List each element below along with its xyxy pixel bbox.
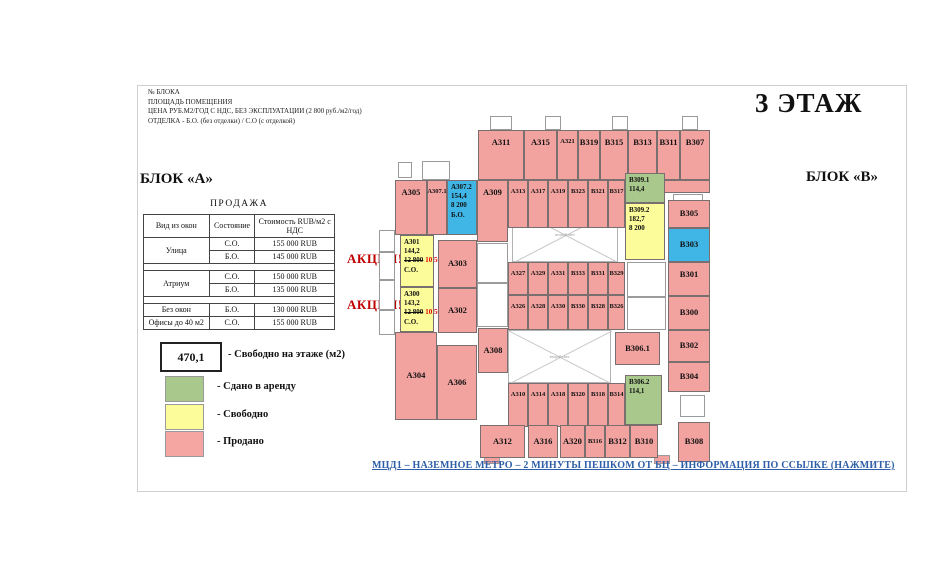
room-В301: В301 bbox=[668, 262, 710, 296]
table-cell: С.О. bbox=[209, 271, 255, 284]
room-id-label: А329 bbox=[531, 270, 545, 277]
room-id-label: А303 bbox=[448, 259, 467, 268]
view-cell: Атриум bbox=[144, 271, 210, 297]
table-spacer-row bbox=[144, 297, 335, 304]
room-А329: А329 bbox=[528, 262, 548, 295]
room-В307: В307 bbox=[680, 130, 710, 180]
room-В331: В331 bbox=[588, 262, 608, 295]
room-А311: А311 bbox=[478, 130, 524, 180]
room-В302: В302 bbox=[668, 330, 710, 362]
room-id-label: В329 bbox=[609, 270, 623, 277]
room-id-label: В315 bbox=[605, 138, 623, 147]
room-id-label: А304 bbox=[407, 371, 426, 380]
room-text-line: С.О. bbox=[404, 318, 418, 327]
room-А307.1: А307.1 bbox=[427, 180, 447, 235]
room-А310: А310 bbox=[508, 383, 528, 427]
legend-item-label: - Свободно bbox=[217, 409, 268, 420]
room-text-line: А307.2 bbox=[451, 183, 472, 192]
room-id-label: В306.1 bbox=[625, 344, 650, 353]
room-id-label: А317 bbox=[531, 188, 545, 195]
room-В323: В323 bbox=[568, 180, 588, 228]
header-line: ПЛОЩАДЬ ПОМЕЩЕНИЯ bbox=[148, 98, 362, 108]
col-header-price: Стоимость RUB/м2 с НДС bbox=[255, 215, 335, 238]
room-id-label: В303 bbox=[680, 240, 698, 249]
room-id-label: В314 bbox=[609, 391, 623, 398]
room-id-label: В308 bbox=[685, 437, 703, 446]
floor-plan: второй свет второй светА311А315А321В319В… bbox=[388, 125, 733, 470]
room-А301: А301144,212 80010 500С.О. bbox=[400, 235, 434, 287]
room-В310: В310 bbox=[630, 425, 658, 458]
view-cell: Офисы до 40 м2 bbox=[144, 317, 210, 330]
room-А316: А316 bbox=[528, 425, 558, 458]
room-id-label: В320 bbox=[571, 391, 585, 398]
room-В321: В321 bbox=[588, 180, 608, 228]
sales-table-title: ПРОДАЖА bbox=[143, 199, 335, 209]
utility-cell bbox=[680, 395, 705, 417]
utility-cell bbox=[545, 116, 561, 130]
room-text-line: 144,2 bbox=[404, 247, 420, 256]
room-В309.2: В309.2182,78 200 bbox=[625, 203, 665, 260]
room-В304: В304 bbox=[668, 362, 710, 392]
room-А319: А319 bbox=[548, 180, 568, 228]
room-В328: В328 bbox=[588, 295, 608, 330]
legend-free-area-label: - Свободно на этаже (м2) bbox=[228, 349, 345, 360]
room-id-label: В333 bbox=[571, 270, 585, 277]
table-row: АтриумС.О.150 000 RUB bbox=[144, 271, 335, 284]
room-А331: А331 bbox=[548, 262, 568, 295]
room-В318: В318 bbox=[588, 383, 608, 427]
room-id-label: А313 bbox=[511, 188, 525, 195]
room-id-label: В319 bbox=[580, 138, 598, 147]
utility-cell bbox=[627, 262, 666, 297]
room-id-label: А311 bbox=[492, 138, 510, 147]
room-В300: В300 bbox=[668, 296, 710, 330]
room-id-label: В328 bbox=[591, 303, 605, 310]
room-id-label: В305 bbox=[680, 209, 698, 218]
view-cell: Улица bbox=[144, 238, 210, 264]
room-id-label: А306 bbox=[448, 378, 467, 387]
room-text-line: В309.1 bbox=[629, 176, 649, 185]
room-text-line: 114,1 bbox=[629, 387, 644, 396]
col-header-state: Состояние bbox=[209, 215, 255, 238]
room-id-label: А321 bbox=[560, 138, 574, 145]
room-text-line: С.О. bbox=[404, 266, 418, 275]
table-row: УлицаС.О.155 000 RUB bbox=[144, 238, 335, 251]
room-id-label: В313 bbox=[633, 138, 651, 147]
room-text-line: В309.2 bbox=[629, 206, 649, 215]
room-А307.2: А307.2154,48 200Б.О. bbox=[447, 180, 477, 235]
room-В326: В326 bbox=[608, 295, 625, 330]
legend-swatch bbox=[165, 376, 204, 402]
header-info: № БЛОКА ПЛОЩАДЬ ПОМЕЩЕНИЯ ЦЕНА РУБ.М2/ГО… bbox=[148, 88, 362, 126]
room-id-label: А328 bbox=[531, 303, 545, 310]
room-А315: А315 bbox=[524, 130, 557, 180]
room-id-label: В307 bbox=[686, 138, 704, 147]
room-id-label: А330 bbox=[551, 303, 565, 310]
room-id-label: А327 bbox=[511, 270, 525, 277]
room-text-line: А301 bbox=[404, 238, 420, 247]
room-id-label: А318 bbox=[551, 391, 565, 398]
room-В333: В333 bbox=[568, 262, 588, 295]
atrium-void: второй свет bbox=[508, 330, 611, 383]
room-А308: А308 bbox=[478, 328, 508, 373]
room-id-label: В301 bbox=[680, 270, 698, 279]
header-line: ЦЕНА РУБ.М2/ГОД С НДС, БЕЗ ЭКСПЛУАТАЦИИ … bbox=[148, 107, 362, 117]
room-id-label: В330 bbox=[571, 303, 585, 310]
block-a-label: БЛОК «А» bbox=[140, 171, 213, 188]
table-cell: 155 000 RUB bbox=[255, 238, 335, 251]
table-cell: Б.О. bbox=[209, 304, 255, 317]
room-А321: А321 bbox=[557, 130, 578, 180]
room-id-label: В310 bbox=[635, 437, 653, 446]
room-А320: А320 bbox=[560, 425, 585, 458]
room-В309.1: В309.1114,4 bbox=[625, 173, 665, 203]
table-cell: 145 000 RUB bbox=[255, 251, 335, 264]
room-text-line: 143,2 bbox=[404, 299, 420, 308]
room-А305: А305 bbox=[395, 180, 427, 235]
room-А326: А326 bbox=[508, 295, 528, 330]
utility-cell bbox=[398, 162, 412, 178]
room-text-line: Б.О. bbox=[451, 211, 465, 220]
table-cell: 155 000 RUB bbox=[255, 317, 335, 330]
room-text-line: 8 200 bbox=[451, 201, 467, 210]
room-id-label: А305 bbox=[402, 188, 421, 197]
room-А304: А304 bbox=[395, 332, 437, 420]
room-text-line: 114,4 bbox=[629, 185, 644, 194]
room-В315: В315 bbox=[600, 130, 628, 180]
room-id-label: В323 bbox=[571, 188, 585, 195]
room-id-label: А307.1 bbox=[427, 188, 446, 195]
old-price: 12 800 bbox=[404, 256, 423, 264]
room-id-label: А316 bbox=[534, 437, 553, 446]
room-В314: В314 bbox=[608, 383, 625, 427]
room-А312: А312 bbox=[480, 425, 525, 458]
room-id-label: А310 bbox=[511, 391, 525, 398]
room-id-label: В304 bbox=[680, 372, 698, 381]
room-А303: А303 bbox=[438, 240, 477, 288]
room-В306.2: В306.2114,1 bbox=[625, 375, 662, 425]
footer-link[interactable]: МЦД1 – НАЗЕМНОЕ МЕТРО – 2 МИНУТЫ ПЕШКОМ … bbox=[372, 460, 895, 471]
room-text-line: А300 bbox=[404, 290, 420, 299]
room-А313: А313 bbox=[508, 180, 528, 228]
table-cell: 130 000 RUB bbox=[255, 304, 335, 317]
room-id-label: А315 bbox=[531, 138, 550, 147]
room-id-label: А302 bbox=[448, 306, 467, 315]
utility-cell bbox=[379, 310, 395, 335]
room-id-label: А326 bbox=[511, 303, 525, 310]
room-id-label: А314 bbox=[531, 391, 545, 398]
utility-cell bbox=[379, 252, 395, 280]
room-А314: А314 bbox=[528, 383, 548, 427]
sales-table: Вид из окон Состояние Стоимость RUB/м2 с… bbox=[143, 214, 335, 330]
room-id-label: А320 bbox=[563, 437, 582, 446]
table-cell: 150 000 RUB bbox=[255, 271, 335, 284]
table-spacer-row bbox=[144, 264, 335, 271]
room-id-label: В311 bbox=[660, 138, 678, 147]
table-cell: С.О. bbox=[209, 317, 255, 330]
room-В320: В320 bbox=[568, 383, 588, 427]
utility-cell bbox=[379, 280, 395, 310]
room-В316: В316 bbox=[585, 425, 605, 458]
utility-cell bbox=[627, 297, 666, 330]
utility-cell bbox=[612, 116, 628, 130]
room-А306: А306 bbox=[437, 345, 477, 420]
utility-cell bbox=[477, 283, 508, 327]
room-А309: А309 bbox=[477, 180, 508, 242]
table-row: Без оконБ.О.130 000 RUB bbox=[144, 304, 335, 317]
floor-title: 3 ЭТАЖ bbox=[755, 88, 862, 119]
legend-free-area-value: 470,1 bbox=[178, 350, 205, 365]
room-id-label: В318 bbox=[591, 391, 605, 398]
room-id-label: В331 bbox=[591, 270, 605, 277]
utility-cell bbox=[682, 116, 698, 130]
header-line: ОТДЕЛКА - Б.О. (без отделки) / С.О (с от… bbox=[148, 117, 362, 127]
room-А327: А327 bbox=[508, 262, 528, 295]
room-В308: В308 bbox=[678, 422, 710, 462]
room-area bbox=[662, 180, 710, 193]
table-cell: С.О. bbox=[209, 238, 255, 251]
view-cell: Без окон bbox=[144, 304, 210, 317]
room-В312: В312 bbox=[605, 425, 630, 458]
room-id-label: А319 bbox=[551, 188, 565, 195]
old-price: 12 800 bbox=[404, 308, 423, 316]
room-id-label: А309 bbox=[483, 188, 502, 197]
room-id-label: В300 bbox=[680, 308, 698, 317]
atrium-label: второй свет bbox=[550, 354, 570, 359]
table-cell: 135 000 RUB bbox=[255, 284, 335, 297]
room-id-label: В316 bbox=[588, 438, 602, 445]
legend-free-area-box: 470,1 bbox=[160, 342, 222, 372]
room-id-label: В326 bbox=[609, 303, 623, 310]
utility-cell bbox=[422, 161, 450, 180]
room-В329: В329 bbox=[608, 262, 625, 295]
room-text-line: 154,4 bbox=[451, 192, 467, 201]
room-А317: А317 bbox=[528, 180, 548, 228]
room-В303: В303 bbox=[668, 228, 710, 262]
legend-swatch bbox=[165, 404, 204, 430]
room-id-label: В321 bbox=[591, 188, 605, 195]
room-А318: А318 bbox=[548, 383, 568, 427]
room-id-label: А308 bbox=[484, 346, 503, 355]
table-cell: Б.О. bbox=[209, 284, 255, 297]
room-А302: А302 bbox=[438, 288, 477, 333]
room-text-line: В306.2 bbox=[629, 378, 649, 387]
room-id-label: А331 bbox=[551, 270, 565, 277]
room-А330: А330 bbox=[548, 295, 568, 330]
room-id-label: В317 bbox=[609, 188, 623, 195]
room-В305: В305 bbox=[668, 200, 710, 228]
room-id-label: В302 bbox=[680, 341, 698, 350]
table-cell: Б.О. bbox=[209, 251, 255, 264]
col-header-view: Вид из окон bbox=[144, 215, 210, 238]
room-text-line: 182,7 bbox=[629, 215, 645, 224]
header-line: № БЛОКА bbox=[148, 88, 362, 98]
utility-cell bbox=[379, 230, 395, 252]
room-В330: В330 bbox=[568, 295, 588, 330]
utility-cell bbox=[477, 243, 508, 283]
room-В306.1: В306.1 bbox=[615, 332, 660, 365]
utility-cell bbox=[490, 116, 512, 130]
room-id-label: В312 bbox=[608, 437, 626, 446]
atrium-label: второй свет bbox=[555, 232, 575, 237]
room-text-line: 8 200 bbox=[629, 224, 645, 233]
legend-item-label: - Сдано в аренду bbox=[217, 381, 296, 392]
room-В319: В319 bbox=[578, 130, 600, 180]
room-А300: А300143,212 80010 500С.О. bbox=[400, 287, 434, 332]
room-А328: А328 bbox=[528, 295, 548, 330]
block-b-label: БЛОК «В» bbox=[806, 169, 878, 186]
room-В317: В317 bbox=[608, 180, 625, 228]
room-id-label: А312 bbox=[493, 437, 512, 446]
legend-item-label: - Продано bbox=[217, 436, 264, 447]
legend-swatch bbox=[165, 431, 204, 457]
table-row: Офисы до 40 м2С.О.155 000 RUB bbox=[144, 317, 335, 330]
